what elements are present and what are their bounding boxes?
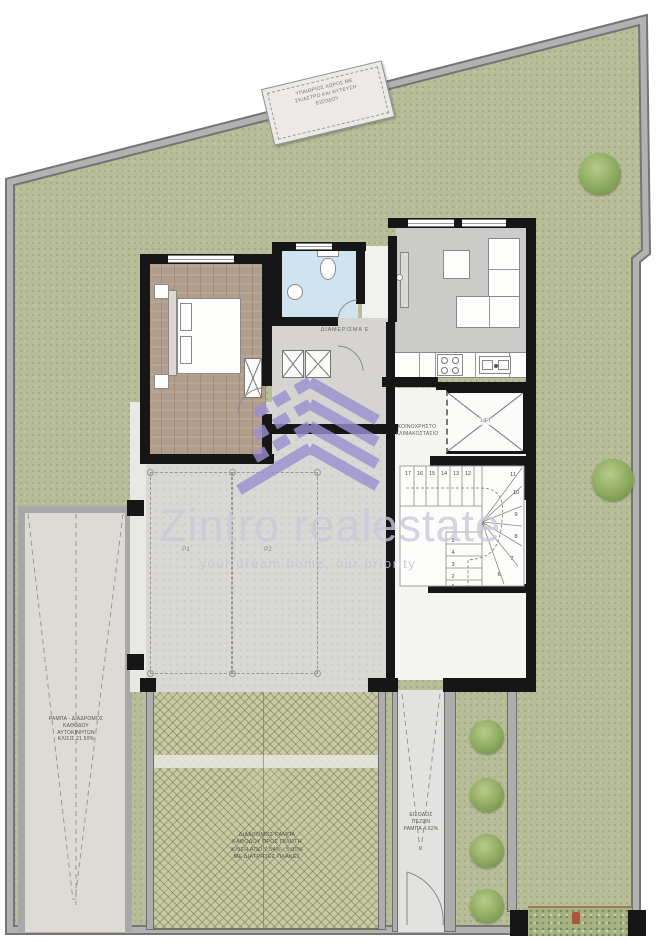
bed-headboard xyxy=(168,290,177,376)
coffee-table xyxy=(443,250,470,279)
floor-plan-canvas: ΥΠΑΙΘΡΙΟΣ ΧΩΡΟΣ ΜΕ ΣΚΙΑΣΤΡΟ ΚΑΙ ΦΥΤΕΥΣΗ … xyxy=(0,0,658,950)
walk-ramp-line-1: ΔΙΑΔΡΟΜΟΣ ΡΑΜΠΑ xyxy=(206,832,328,839)
living-window xyxy=(462,219,506,227)
elevator-lift-label: LIFT xyxy=(466,418,506,425)
stair-number: 16 xyxy=(417,471,423,477)
bush-icon xyxy=(470,720,504,754)
sofa-seam xyxy=(489,269,519,270)
walk-ramp-label: ΔΙΑΔΡΟΜΟΣ ΡΑΜΠΑ ΚΑΘΟΔΟΥ ΠΡΟΣ ΠΙΛΟΤΗ ΚΛΙΣ… xyxy=(206,832,328,862)
tree-icon xyxy=(592,459,634,501)
pedestrian-path xyxy=(398,690,444,932)
car-ramp-line-1: ΡΑΜΠΑ - ΔΙΑΔΡΟΜΟΣ xyxy=(30,716,122,723)
sink-basin xyxy=(482,360,493,370)
car-ramp-label: ΡΑΜΠΑ - ΔΙΑΔΡΟΜΟΣ ΚΑΘΟΔΟΥ ΑΥΤΟΚΙΝΗΤΩΝ ΚΛ… xyxy=(30,716,122,743)
core-label-line-2: ΚΛΙΜΑΚΟΣΤΑΣΙΟ xyxy=(390,431,444,438)
garden-divider-wall xyxy=(507,690,517,912)
walk-ramp-light-band xyxy=(150,755,382,768)
washbasin xyxy=(287,284,303,300)
stair-number: 10 xyxy=(513,490,519,496)
elevator-top-wall xyxy=(436,382,528,390)
corner-block xyxy=(510,910,528,936)
bedroom-right-wall-upper xyxy=(262,254,272,386)
pilotis-column xyxy=(140,678,156,692)
counter-divider xyxy=(475,353,476,377)
car-ramp-line-4: ΚΛΙΣΙΣ 21.50% xyxy=(30,736,122,743)
bush-icon xyxy=(470,889,504,923)
vestibule-floor xyxy=(362,246,390,320)
stall-corner-marker xyxy=(147,670,154,677)
kitchen-sink xyxy=(479,356,511,374)
building-right-wall xyxy=(526,218,536,692)
apartment-label: ΔΙΑΜΕΡΙΣΜΑ Ε xyxy=(305,327,385,334)
walk-ramp-hatched-area xyxy=(146,690,386,930)
faucet-icon xyxy=(494,364,498,368)
building-bottom-wall xyxy=(443,678,536,692)
walk-ramp-line-2: ΚΑΘΟΔΟΥ ΠΡΟΣ ΠΙΛΟΤΗ xyxy=(206,839,328,846)
bathroom-bottom-wall xyxy=(272,317,338,326)
entrance-label: ΕΙΣΟΔΟΣ ΠΕΖΩΝ ΡΑΜΠΑ 4.62% xyxy=(398,812,444,832)
stall-corner-marker xyxy=(229,670,236,677)
bathroom-left-wall xyxy=(272,242,282,326)
vestibule-right-wall xyxy=(388,236,397,322)
stair-number: 15 xyxy=(429,471,435,477)
flower-bed-accent xyxy=(572,912,580,924)
pedestrian-path-right-wall xyxy=(444,690,456,932)
sink-basin xyxy=(498,360,509,370)
stall-corner-marker xyxy=(314,670,321,677)
pilotis-column xyxy=(127,654,144,670)
corner-block xyxy=(628,910,646,936)
counter-divider xyxy=(435,353,436,377)
entrance-line-1: ΕΙΣΟΔΟΣ xyxy=(398,812,444,819)
stair-number: 17 xyxy=(405,471,411,477)
burner-icon xyxy=(441,367,448,374)
walk-ramp-right-wall xyxy=(378,690,386,930)
pillow xyxy=(180,336,192,364)
zintro-logo-icon xyxy=(225,372,395,512)
bathroom-right-wall xyxy=(356,242,365,304)
car-ramp-line-2: ΚΑΘΟΔΟΥ xyxy=(30,723,122,730)
pilotis-column xyxy=(368,678,388,692)
watermark-brand: Zintro realestate xyxy=(140,500,520,552)
entrance-line-3: ΡΑΜΠΑ 4.62% xyxy=(398,826,444,833)
pedestrian-path-left-wall xyxy=(392,690,398,932)
stair-number: 2 xyxy=(451,574,454,580)
sofa-seam xyxy=(489,297,490,327)
bush-icon xyxy=(470,834,504,868)
watermark-tagline: your dream home, our priority xyxy=(128,556,488,571)
bathroom-window xyxy=(296,243,332,250)
sofa-horizontal xyxy=(456,296,520,328)
car-ramp-line-3: ΑΥΤΟΚΙΝΗΤΩΝ xyxy=(30,730,122,737)
walk-ramp-line-3: ΚΛΙΣΗ ΑΠΟ 7.54% - 5.00% xyxy=(206,847,328,854)
tree-icon xyxy=(579,153,621,195)
core-label-line-1: ΚΟΙΝΟΧΡΗΣΤΟ xyxy=(390,424,444,431)
bedroom-window xyxy=(168,255,234,263)
stall-corner-marker xyxy=(147,469,154,476)
counter-divider xyxy=(419,353,420,377)
living-window xyxy=(408,219,454,227)
stair-number: 7 xyxy=(510,556,513,562)
bedroom-left-wall xyxy=(140,254,150,464)
stair-number: 6 xyxy=(497,572,500,578)
stair-number: 1 xyxy=(451,584,454,590)
stove xyxy=(437,354,463,376)
pillow xyxy=(180,303,192,331)
entrance-line-2: ΠΕΖΩΝ xyxy=(398,819,444,826)
flower-bed-strip xyxy=(528,906,632,936)
walk-ramp-left-wall xyxy=(146,690,154,930)
stair-core-label: ΚΟΙΝΟΧΡΗΣΤΟ ΚΛΙΜΑΚΟΣΤΑΣΙΟ xyxy=(390,424,444,438)
entry-door-knob xyxy=(396,274,403,281)
nightstand xyxy=(154,284,169,299)
walk-ramp-fold-line xyxy=(263,692,264,928)
toilet-bowl xyxy=(320,258,336,280)
stair-number: 13 xyxy=(453,471,459,477)
stair-number: 12 xyxy=(465,471,471,477)
nightstand xyxy=(154,374,169,389)
stair-number: 11 xyxy=(510,472,516,478)
burner-icon xyxy=(452,367,459,374)
burner-icon xyxy=(441,357,448,364)
bush-icon xyxy=(470,778,504,812)
burner-icon xyxy=(452,357,459,364)
stair-number: 14 xyxy=(441,471,447,477)
walk-ramp-line-4: ΜΕ ΔΙΑΤΡΗΤΕΣ ΠΛΑΚΕΣ xyxy=(206,854,328,861)
